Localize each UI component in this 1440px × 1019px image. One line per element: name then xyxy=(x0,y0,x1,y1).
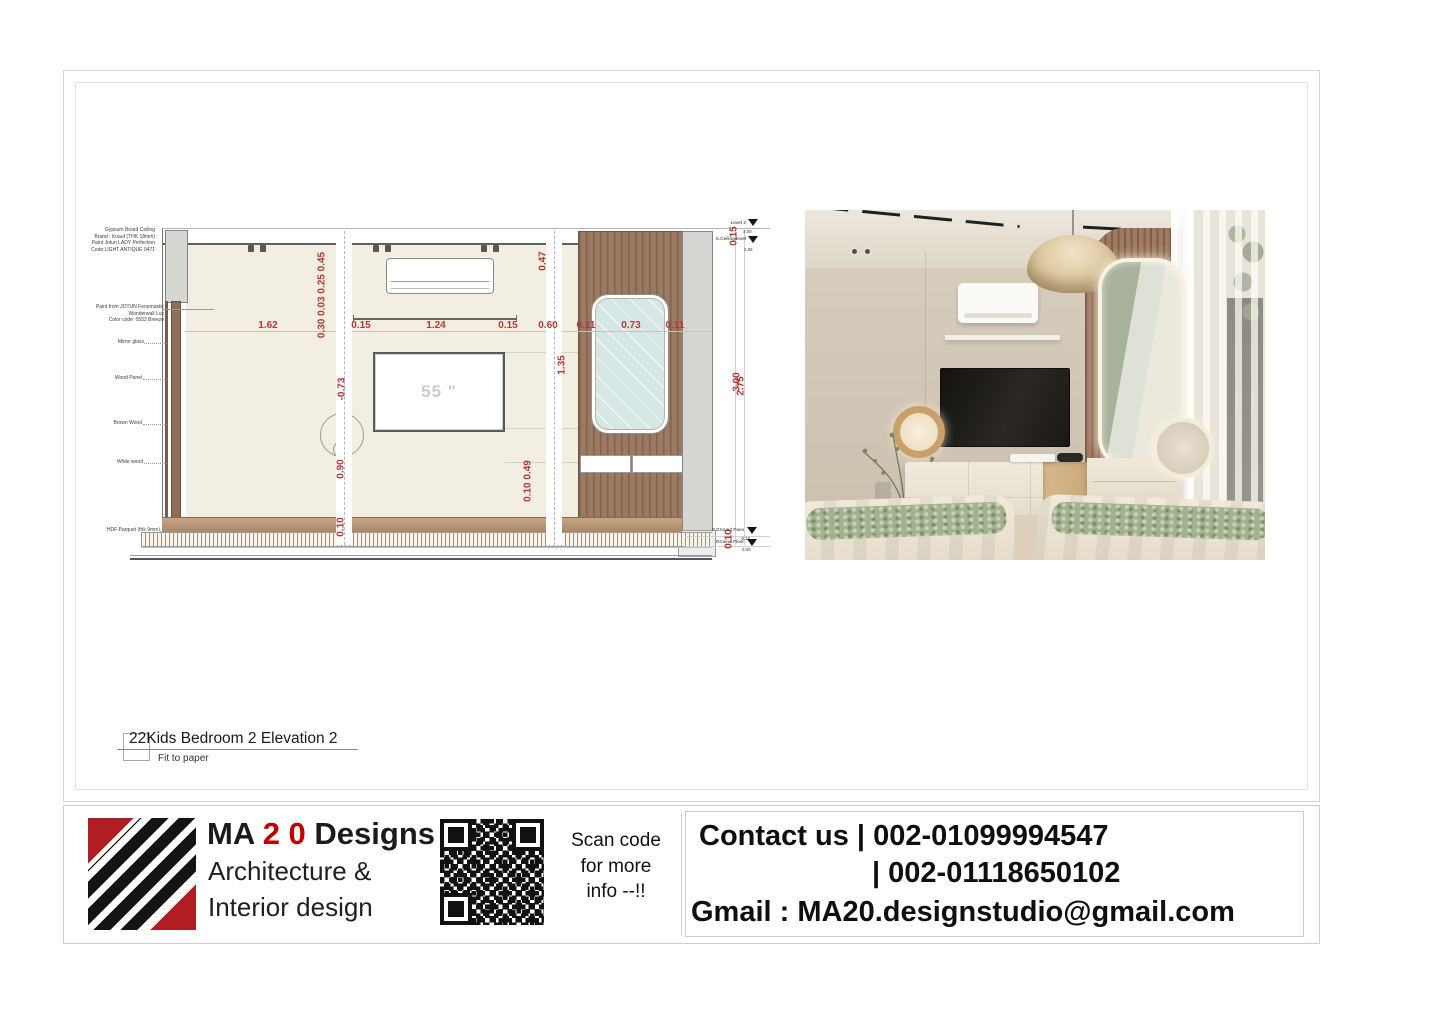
dimension: -0.73 xyxy=(337,378,348,401)
photo-spotlight xyxy=(852,249,857,254)
brand-subtitle-line2: Interior design xyxy=(208,892,373,923)
dimension: 0.10 xyxy=(336,517,347,536)
photo-spotlight xyxy=(865,249,870,254)
level-marker-value: 3.00 xyxy=(743,229,752,234)
contact-email: Gmail : MA20.designstudio@gmail.com xyxy=(691,896,1235,929)
brand-subtitle-line1: Architecture & xyxy=(208,856,371,887)
qr-caption: Scan code for more info --!! xyxy=(552,828,680,905)
level-triangle-icon xyxy=(747,527,757,534)
guide-line xyxy=(501,352,578,353)
spotlight-icon xyxy=(373,244,395,253)
guide-line xyxy=(505,462,580,463)
qr-finder-icon xyxy=(512,819,544,851)
wood-edge-strip xyxy=(165,301,168,517)
tv-elevation: 55 " xyxy=(373,352,505,432)
label-leader xyxy=(143,424,167,425)
photo-ac-unit xyxy=(958,283,1038,323)
ac-unit-elevation xyxy=(386,258,494,294)
dimension: 0.90 xyxy=(336,459,347,478)
level-marker-value: 2.85 xyxy=(744,247,753,252)
photo-blanket xyxy=(806,501,1007,540)
footer-divider xyxy=(681,813,682,935)
qr-finder-icon xyxy=(440,819,472,851)
material-label-paint: Paint from JOTUN Fenomastic Wonderwall L… xyxy=(52,304,164,324)
dimension: 0.73 xyxy=(621,320,640,331)
photo-round-mirror xyxy=(1153,418,1213,478)
brand-suffix: Designs xyxy=(314,816,435,851)
render-photo xyxy=(805,210,1265,560)
fit-to-paper-label: Fit to paper xyxy=(158,753,209,764)
wood-edge-strip xyxy=(171,301,181,519)
dimension: 0.11 xyxy=(577,320,596,331)
photo-shelf xyxy=(945,335,1060,340)
dimension: 1.24 xyxy=(426,320,445,331)
dimension-line xyxy=(185,331,710,332)
floor-line xyxy=(141,547,712,548)
qr-finder-icon xyxy=(440,893,472,925)
ground-line-bold xyxy=(130,558,712,560)
ground-line xyxy=(130,555,712,556)
title-underline xyxy=(117,749,358,750)
brand-number: 2 0 xyxy=(263,816,306,851)
level-marker-name: Ground Floor xyxy=(712,540,744,545)
dimension: 2.75 xyxy=(736,376,747,395)
section-break-column xyxy=(546,231,562,545)
dimension: 1.35 xyxy=(557,355,568,374)
material-label-parquet: HDF Parquet (thk 9mm) xyxy=(48,527,160,534)
material-label-woodpanel: Wood Panel xyxy=(30,375,142,382)
drawing-sheet-page: 55 " 1.62 0.15 1.24 0.15 0.60 0.11 0.73 … xyxy=(0,0,1440,1019)
material-label-brownwood: Brown Wood xyxy=(30,420,142,427)
qr-code xyxy=(437,816,547,928)
spotlight-icon xyxy=(248,244,270,253)
level-triangle-icon xyxy=(748,236,758,243)
contact-phone-1: Contact us | 002-01099994547 xyxy=(699,820,1109,853)
level-marker-name: S.Ceiling level xyxy=(710,237,746,242)
label-leader xyxy=(143,379,167,380)
drawing-title: 22Kids Bedroom 2 Elevation 2 xyxy=(129,730,338,748)
photo-blanket xyxy=(1051,501,1265,541)
wall-section-block xyxy=(165,230,188,303)
contact-phone-2: | 002-01118650102 xyxy=(872,857,1120,890)
material-label-mirror: Mirror glass xyxy=(32,339,144,346)
photo-bed-right xyxy=(1036,494,1265,560)
guide-line xyxy=(501,428,578,429)
mirror-panel xyxy=(592,295,668,433)
spotlight-icon xyxy=(481,244,503,253)
brand-prefix: MA xyxy=(207,816,254,851)
level-marker-value: 0.00 xyxy=(742,547,751,552)
level2-line xyxy=(162,228,770,229)
dressing-drawer xyxy=(580,455,631,473)
dimension: 0.15 xyxy=(498,320,517,331)
wall-section-column xyxy=(682,231,713,532)
brand-title: MA 2 0 Designs xyxy=(207,816,435,852)
level-marker-name: Level 2 xyxy=(718,221,746,226)
photo-cable xyxy=(925,252,926,408)
dimension: 0.10 0.49 xyxy=(523,460,534,502)
contact-box: Contact us | 002-01099994547 | 002-01118… xyxy=(685,811,1304,937)
company-logo xyxy=(88,818,196,930)
level-triangle-icon xyxy=(748,219,758,226)
dimension: 1.62 xyxy=(258,320,277,331)
dimension: 0.60 xyxy=(538,320,557,331)
material-label-gypsum: Gypsum Board Ceiling Brand : Knauf (THK … xyxy=(43,227,155,253)
dimension: 0.11 xyxy=(666,320,685,331)
label-leader xyxy=(162,309,214,310)
tv-size-label: 55 " xyxy=(421,382,457,402)
label-leader xyxy=(144,343,167,344)
dimension: 0.15 xyxy=(729,226,740,245)
material-label-whitewood: White wood xyxy=(31,459,143,466)
photo-tv xyxy=(940,368,1070,447)
level-marker-name: F.Ground Face xyxy=(710,528,744,533)
photo-pendant-cord xyxy=(1072,210,1074,238)
photo-console-item xyxy=(1057,453,1083,462)
dimension: 0.15 xyxy=(351,320,370,331)
floor-hatch xyxy=(141,532,712,547)
photo-bed-left xyxy=(805,494,1016,560)
label-leader xyxy=(144,463,167,464)
dressing-drawer xyxy=(632,455,683,473)
left-wall-line xyxy=(162,228,163,545)
dimension: 0.47 xyxy=(538,251,549,270)
label-leader xyxy=(160,531,245,532)
level-triangle-icon xyxy=(747,539,757,546)
dimension: 0.30 0.03 0.25 0.45 xyxy=(317,252,328,338)
photo-console-item xyxy=(1010,454,1055,462)
